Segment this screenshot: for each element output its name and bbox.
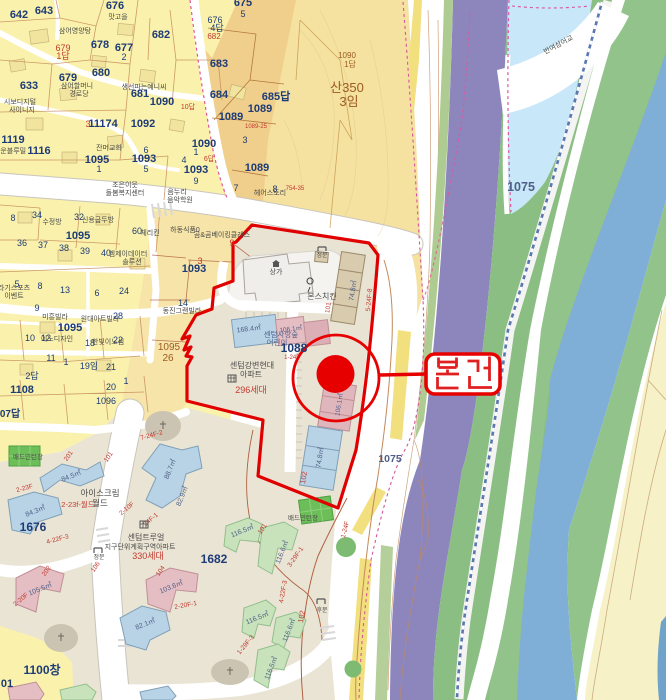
svg-text:라기스포츠: 라기스포츠 [0,283,31,292]
svg-text:11174: 11174 [88,118,118,130]
svg-text:633: 633 [20,80,38,92]
svg-text:상가: 상가 [270,267,283,276]
svg-text:맛고을: 맛고을 [108,12,128,21]
svg-text:경로당: 경로당 [69,89,89,98]
svg-text:4: 4 [181,155,186,165]
svg-text:1096: 1096 [96,396,116,406]
svg-text:34: 34 [32,210,42,220]
svg-text:시보디지털: 시보디지털 [4,97,36,106]
svg-text:2-23f-월드: 2-23f-월드 [61,499,94,509]
svg-text:14: 14 [178,298,188,308]
svg-text:조은이웃: 조은이웃 [112,180,138,189]
svg-text:24: 24 [119,286,129,296]
svg-text:1089: 1089 [245,162,269,174]
svg-text:1095: 1095 [66,230,90,242]
svg-text:1: 1 [123,376,128,386]
svg-text:상운블루밀: 상운블루밀 [0,146,26,155]
svg-text:사이니지: 사이니지 [9,105,35,114]
svg-text:삼어할머니: 삼어할머니 [61,81,93,90]
svg-text:1답: 1답 [56,50,69,61]
svg-text:1100창: 1100창 [23,662,60,677]
svg-text:6답: 6답 [204,154,215,163]
svg-text:미흥빌라: 미흥빌라 [42,312,68,321]
svg-text:1093: 1093 [184,164,208,176]
svg-text:675: 675 [234,0,252,9]
svg-text:20: 20 [106,382,116,392]
svg-text:1: 1 [63,357,68,367]
svg-text:1095: 1095 [158,342,181,353]
svg-text:39: 39 [80,246,90,256]
svg-text:8: 8 [37,281,42,291]
svg-text:수정방: 수정방 [42,217,62,226]
svg-text:5: 5 [143,164,148,174]
svg-text:1089: 1089 [248,103,272,115]
svg-text:21: 21 [106,362,116,372]
svg-text:36: 36 [17,238,27,248]
svg-text:3: 3 [197,256,202,266]
svg-text:1: 1 [96,164,101,174]
svg-text:1089: 1089 [219,111,243,123]
svg-text:원대아트빌라: 원대아트빌라 [81,314,120,323]
svg-text:동진그랜빌라: 동진그랜빌라 [163,306,202,315]
svg-text:3: 3 [242,135,247,145]
svg-text:1075: 1075 [507,180,535,194]
svg-text:682: 682 [207,32,221,41]
svg-text:후문: 후문 [316,606,328,614]
svg-text:1090: 1090 [338,51,356,60]
svg-text:38: 38 [59,243,69,253]
svg-text:생선파는예니씨: 생선파는예니씨 [121,82,166,91]
svg-text:1682: 1682 [201,552,228,566]
svg-text:1093: 1093 [182,263,206,275]
svg-text:6: 6 [94,288,99,298]
svg-text:음누리: 음누리 [167,187,186,196]
svg-text:678: 678 [91,39,109,51]
svg-text:2: 2 [121,52,126,62]
svg-text:아이스크림: 아이스크림 [80,488,119,498]
svg-text:1075: 1075 [378,453,402,465]
svg-text:본스치킨: 본스치킨 [307,291,336,301]
svg-text:잔머교회: 잔머교회 [96,143,122,152]
svg-text:330세대: 330세대 [132,551,164,561]
svg-text:배드민턴장: 배드민턴장 [288,513,318,522]
svg-text:돌봄복지센터: 돌봄복지센터 [106,188,145,197]
svg-text:엠제이데이터: 엠제이데이터 [109,249,148,258]
svg-text:아파트: 아파트 [240,369,262,379]
svg-text:이벤트: 이벤트 [4,291,24,300]
svg-text:1108: 1108 [10,384,34,396]
svg-text:2답: 2답 [25,370,38,381]
svg-text:센텀트루얼: 센텀트루얼 [128,532,165,542]
svg-text:1676: 1676 [20,520,47,534]
svg-text:정문: 정문 [93,554,105,561]
svg-text:3임: 3임 [339,94,358,109]
svg-text:682: 682 [152,29,170,41]
svg-text:센텀강변현대: 센텀강변현대 [230,360,274,370]
svg-text:754-35: 754-35 [286,186,305,192]
svg-text:이노디자인: 이노디자인 [41,334,73,343]
svg-text:1090: 1090 [150,96,174,108]
svg-text:685답: 685답 [262,89,290,103]
svg-text:배드민턴장: 배드민턴장 [13,452,43,461]
svg-text:헤어스토리: 헤어스토리 [254,188,286,197]
svg-text:1119: 1119 [1,134,24,146]
svg-text:642: 642 [10,9,28,21]
svg-text:1116: 1116 [27,145,50,157]
svg-text:1095: 1095 [58,322,82,334]
svg-text:11: 11 [46,353,55,363]
svg-text:296세대: 296세대 [235,385,267,395]
svg-text:1088: 1088 [281,341,308,355]
svg-text:643: 643 [35,5,53,17]
svg-text:5: 5 [240,9,245,19]
svg-text:곰&곰베이킹클래스: 곰&곰베이킹클래스 [194,230,251,239]
svg-text:07답: 07답 [0,408,21,420]
svg-text:3: 3 [85,119,90,129]
svg-text:6: 6 [143,145,148,155]
svg-text:1-24F: 1-24F [284,355,300,361]
svg-text:정문: 정문 [316,252,328,259]
svg-text:솔루션: 솔루션 [122,257,141,266]
svg-text:684: 684 [210,89,229,101]
svg-text:10: 10 [25,333,35,343]
svg-text:9: 9 [229,238,234,248]
svg-text:삼어영양탕: 삼어영양탕 [59,26,92,35]
svg-text:체리킨: 체리킨 [140,228,159,237]
svg-text:01: 01 [1,678,13,690]
svg-text:26: 26 [162,353,174,364]
svg-text:37: 37 [38,240,48,250]
svg-text:9: 9 [193,176,198,186]
svg-text:지구단위계획구역아파트: 지구단위계획구역아파트 [105,542,176,551]
svg-text:10답: 10답 [181,102,196,111]
svg-text:7: 7 [233,183,238,193]
svg-text:산350: 산350 [330,80,364,95]
svg-text:1답: 1답 [344,59,356,69]
svg-text:9: 9 [34,303,39,313]
svg-text:676: 676 [106,0,124,12]
svg-text:8: 8 [10,213,15,223]
svg-text:683: 683 [210,58,228,70]
svg-text:13: 13 [60,285,70,295]
svg-text:680: 680 [92,67,110,79]
svg-text:1092: 1092 [131,118,155,130]
svg-text:신용굽두방: 신용굽두방 [82,215,115,224]
svg-text:음악학원: 음악학원 [167,195,193,204]
svg-text:19임: 19임 [80,360,98,371]
svg-text:1089-25: 1089-25 [245,124,268,130]
svg-text:1: 1 [193,147,198,157]
svg-text:한빛이노셈: 한빛이노셈 [92,337,124,346]
